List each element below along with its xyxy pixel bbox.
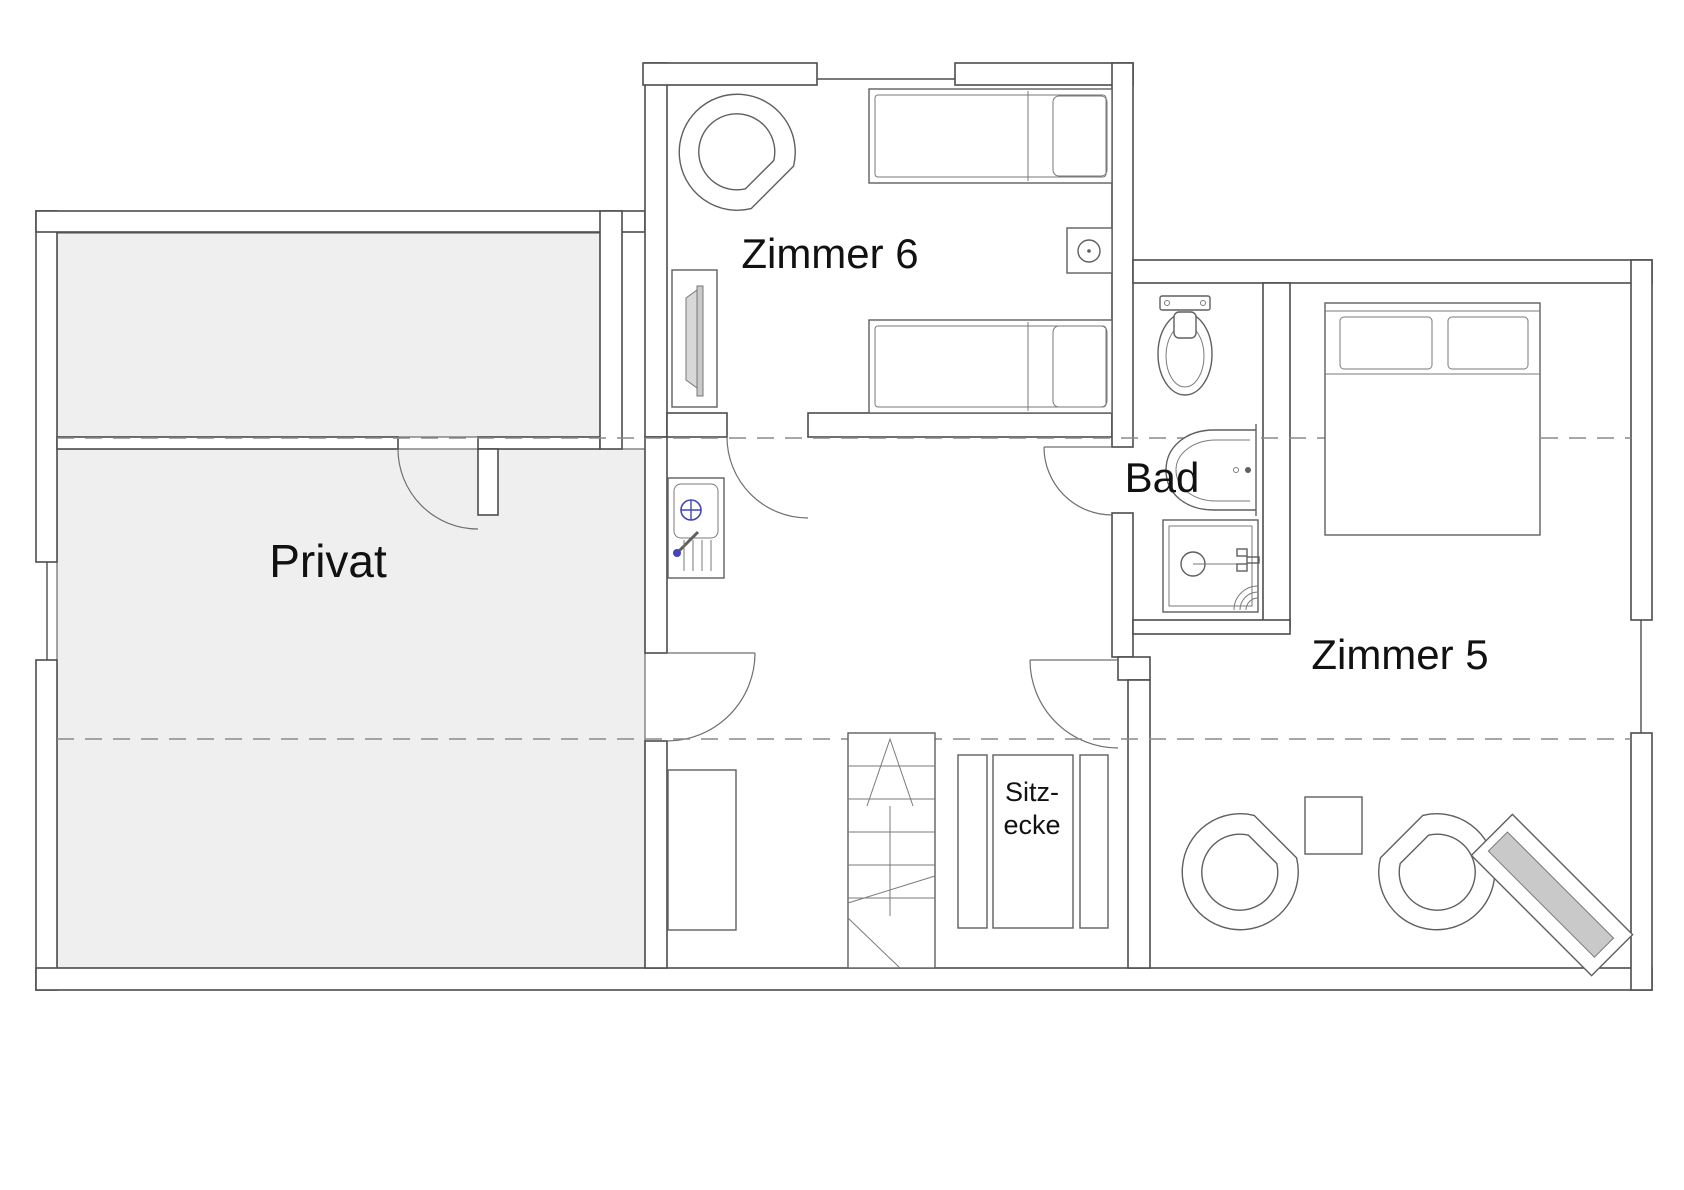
toilet-icon [1158, 296, 1212, 395]
armchair-left-icon [1158, 796, 1316, 954]
wall-privat-upper-east [600, 211, 622, 449]
wall-east-lower [1631, 733, 1652, 990]
label-sitzecke-line1: Sitz- [1005, 777, 1059, 807]
wall-zimmer6-north-left [643, 63, 817, 85]
door-bad [1044, 447, 1112, 515]
floorplan-drawing: Zimmer 6 Bad Privat Zimmer 5 Sitz- ecke [0, 0, 1684, 1190]
wall-bad-south [1133, 620, 1290, 634]
wall-sitting-west [1128, 680, 1150, 968]
label-bad: Bad [1125, 454, 1200, 501]
floorplan-page: Zimmer 6 Bad Privat Zimmer 5 Sitz- ecke [0, 0, 1684, 1190]
shower-icon [1163, 520, 1259, 612]
wall-zimmer6-east-upper [1112, 63, 1133, 447]
side-table-icon [1305, 797, 1362, 854]
privat-upper-room [57, 233, 600, 437]
door-zimmer6 [727, 437, 808, 518]
wall-stairhall-jamb [1118, 657, 1150, 680]
armchair-icon [655, 70, 813, 228]
single-bed-1-icon [869, 89, 1112, 183]
wall-left-upper [36, 211, 57, 562]
wall-zimmer6-south-right [808, 413, 1112, 437]
wall-top-privat [36, 211, 645, 232]
nightstand-icon [1067, 228, 1112, 273]
wall-zimmer6-west [645, 63, 667, 437]
wall-left-lower [36, 660, 57, 990]
wardrobe-icon [672, 270, 717, 407]
door-privat-corridor [667, 653, 755, 741]
privat-area-fills [57, 233, 645, 968]
wall-north-right-wing [1133, 260, 1652, 283]
wall-zimmer6-south-left [667, 413, 727, 437]
double-bed-icon [1325, 303, 1540, 535]
label-zimmer6: Zimmer 6 [741, 230, 918, 277]
radiator-icon [1471, 814, 1632, 975]
label-privat: Privat [269, 535, 387, 587]
door-zimmer5 [1030, 660, 1118, 748]
wall-east-upper [1631, 260, 1652, 620]
wall-bottom [36, 968, 1652, 990]
label-sitzecke-line2: ecke [1003, 810, 1060, 840]
wall-zimmer6-north-right [955, 63, 1133, 85]
kitchenette-sink-icon [668, 478, 724, 578]
wall-bad-west-lower [1112, 513, 1133, 657]
wall-corridor-west-lower [645, 741, 667, 968]
wall-corridor-west-upper [645, 437, 667, 653]
label-zimmer5: Zimmer 5 [1311, 631, 1488, 678]
faucet-dot-icon [673, 549, 681, 557]
wall-bad-east [1263, 283, 1290, 628]
wall-privat-door-jamb [478, 449, 498, 515]
corridor-furniture [668, 478, 1108, 968]
privat-lower-room [57, 449, 645, 968]
single-bed-2-icon [869, 320, 1112, 413]
staircase-icon [848, 733, 935, 968]
sideboard-icon [668, 770, 736, 930]
